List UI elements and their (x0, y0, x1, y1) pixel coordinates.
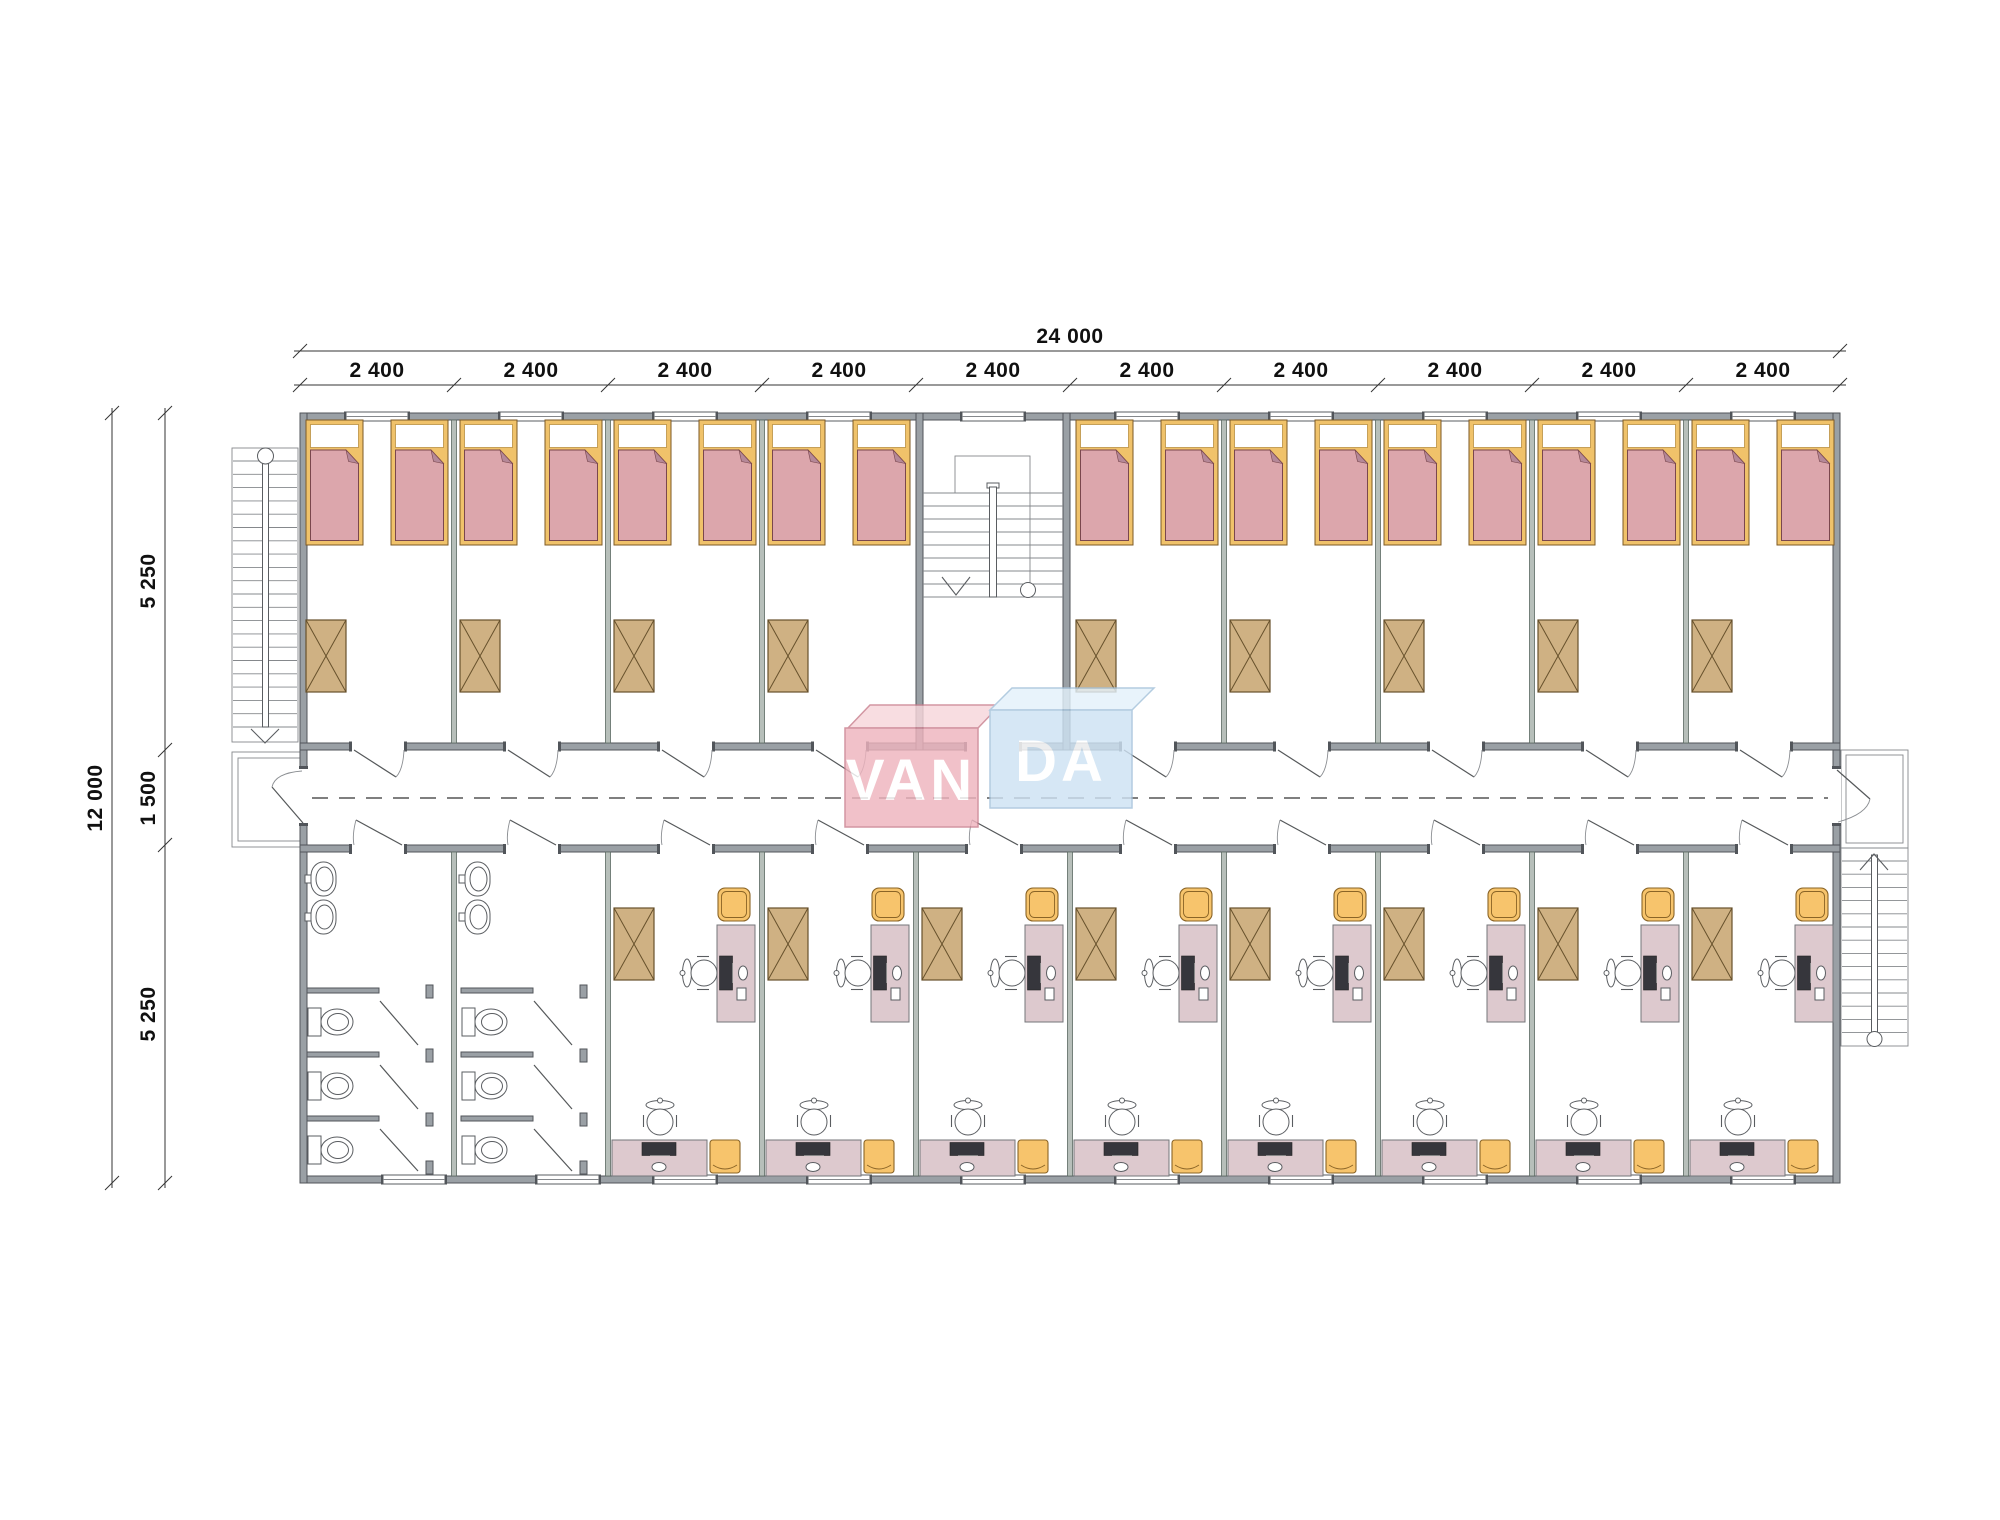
wardrobe (614, 620, 654, 692)
room-door (657, 742, 715, 778)
stall-partition (461, 1052, 533, 1057)
wardrobe (1076, 620, 1116, 692)
room-door (1273, 820, 1331, 854)
partition-wall (1068, 852, 1073, 1176)
office-chair (988, 957, 1025, 990)
window (960, 412, 1026, 422)
desk-with-computer (1690, 1140, 1785, 1176)
exterior-stair-left (232, 448, 298, 743)
stall-door (534, 1065, 572, 1109)
wardrobe (1230, 908, 1270, 980)
logo-text-left: VAN (846, 748, 976, 813)
sink (459, 862, 490, 896)
bed (1777, 420, 1834, 545)
office-chair (834, 957, 871, 990)
stair-start-marker (1867, 1032, 1882, 1047)
chair (1642, 888, 1674, 921)
room-door (503, 820, 561, 854)
dimension-label-corridor: 1 500 (137, 770, 160, 825)
office-chair (1106, 1098, 1139, 1135)
chair (1488, 888, 1520, 921)
chair (872, 888, 904, 921)
bed (545, 420, 602, 545)
desk-with-computer (612, 1140, 707, 1176)
partition-wall (1222, 420, 1227, 743)
office-chair (1722, 1098, 1755, 1135)
logo-cube-blue-top (990, 688, 1154, 710)
room-door (1735, 742, 1793, 778)
room-door (1735, 820, 1793, 854)
room-door (349, 742, 407, 778)
entrance-door-left (272, 766, 308, 826)
stair-start-marker (258, 448, 274, 464)
desk-with-computer (1025, 925, 1063, 1022)
desk-with-computer (1641, 925, 1679, 1022)
wardrobe (1230, 620, 1270, 692)
office-chair (1450, 957, 1487, 990)
bed (853, 420, 910, 545)
room-door (1119, 820, 1177, 854)
stall-door (380, 1065, 418, 1109)
stall-door (534, 1129, 572, 1171)
chair (1796, 888, 1828, 921)
toilet (462, 1136, 507, 1164)
exterior-stair-right (1841, 848, 1908, 1047)
cabinet (1018, 1140, 1048, 1173)
office-chair (798, 1098, 831, 1135)
office-chair (1604, 957, 1641, 990)
room-door (1581, 820, 1639, 854)
wardrobe (306, 620, 346, 692)
entrance-landing-right (1841, 750, 1908, 848)
office-chair (1758, 957, 1795, 990)
bed (391, 420, 448, 545)
partition-wall (606, 852, 611, 1176)
stall-partition (461, 988, 533, 993)
entrance-door-right (1832, 766, 1870, 826)
stall-partition (461, 1116, 533, 1121)
partition-wall (1222, 852, 1227, 1176)
partition-wall (914, 852, 919, 1176)
sink (305, 900, 336, 934)
dimension-label-total-width: 24 000 (1036, 325, 1103, 348)
dimension-label-top-depth: 5 250 (137, 553, 160, 608)
entrance-landing-left (232, 752, 307, 847)
desk-with-computer (717, 925, 755, 1022)
floor-plan-drawing: 24 000 2 400 2 400 2 400 2 400 2 400 2 4… (0, 0, 2000, 1520)
office-chair (1142, 957, 1179, 990)
office-chair (1568, 1098, 1601, 1135)
partition-wall (452, 852, 457, 1176)
wardrobe (1076, 908, 1116, 980)
desk-with-computer (1536, 1140, 1631, 1176)
central-staircase (923, 456, 1063, 598)
bed (1469, 420, 1526, 545)
office-chair (1296, 957, 1333, 990)
vanda-logo: VAN DA (845, 688, 1154, 827)
dimension-label-module: 2 400 (1581, 359, 1636, 382)
room-door (657, 820, 715, 854)
partition-wall (1376, 852, 1381, 1176)
toilet (308, 1136, 353, 1164)
desk-with-computer (1179, 925, 1217, 1022)
logo-text-right: DA (1015, 729, 1107, 794)
bed (1538, 420, 1595, 545)
toilet (308, 1072, 353, 1100)
stair-start-marker (1021, 583, 1036, 598)
wardrobe (460, 620, 500, 692)
desk-with-computer (1795, 925, 1833, 1022)
desk-with-computer (1228, 1140, 1323, 1176)
stall-door (380, 1129, 418, 1171)
bed (1384, 420, 1441, 545)
dimension-label-module: 2 400 (1427, 359, 1482, 382)
room-door (349, 820, 407, 854)
office-chair (952, 1098, 985, 1135)
office-chair (644, 1098, 677, 1135)
desk-with-computer (1333, 925, 1371, 1022)
wardrobe (1692, 908, 1732, 980)
stair-direction-arrow (942, 577, 970, 595)
bed (1315, 420, 1372, 545)
window (535, 1175, 601, 1185)
partition-wall (760, 420, 765, 743)
desk-with-computer (766, 1140, 861, 1176)
partition-wall (1530, 852, 1535, 1176)
cabinet (1172, 1140, 1202, 1173)
dimension-label-module: 2 400 (349, 359, 404, 382)
wardrobe (1384, 908, 1424, 980)
cabinet (864, 1140, 894, 1173)
cabinet (1480, 1140, 1510, 1173)
wardrobe (768, 908, 808, 980)
dimension-label-bottom-depth: 5 250 (137, 986, 160, 1041)
dimension-label-module: 2 400 (1273, 359, 1328, 382)
desk-with-computer (920, 1140, 1015, 1176)
office-chair (680, 957, 717, 990)
partition-wall (606, 420, 611, 743)
partition-wall (760, 852, 765, 1176)
cabinet (710, 1140, 740, 1173)
room-door (1427, 820, 1485, 854)
stall-partition (307, 1052, 379, 1057)
room-door (503, 742, 561, 778)
room-door (1273, 742, 1331, 778)
office-chair (1260, 1098, 1293, 1135)
bed (699, 420, 756, 545)
cabinet (1326, 1140, 1356, 1173)
sink (305, 862, 336, 896)
bathrooms (305, 862, 587, 1174)
stall-door (534, 1001, 572, 1045)
dimension-label-module: 2 400 (811, 359, 866, 382)
dimension-label-total-depth: 12 000 (84, 764, 107, 831)
desk-with-computer (1074, 1140, 1169, 1176)
partition-wall (1684, 852, 1689, 1176)
partition-wall (1376, 420, 1381, 743)
chair (1026, 888, 1058, 921)
room-door (1427, 742, 1485, 778)
wardrobe (1538, 620, 1578, 692)
dimension-label-module: 2 400 (1119, 359, 1174, 382)
cabinet (1788, 1140, 1818, 1173)
toilet (462, 1072, 507, 1100)
chair (1334, 888, 1366, 921)
bed (768, 420, 825, 545)
desk-with-computer (1382, 1140, 1477, 1176)
dimension-label-module: 2 400 (657, 359, 712, 382)
toilet (308, 1008, 353, 1036)
stairwell-wall-left (916, 413, 923, 750)
bed (1230, 420, 1287, 545)
stall-partition (307, 1116, 379, 1121)
stair-direction-arrow (251, 729, 279, 743)
partition-wall (452, 420, 457, 743)
dimension-label-module: 2 400 (965, 359, 1020, 382)
wardrobe (1384, 620, 1424, 692)
bed (614, 420, 671, 545)
stall-door (380, 1001, 418, 1045)
chair (1180, 888, 1212, 921)
bed (1161, 420, 1218, 545)
floor-plan-sheet: 24 000 2 400 2 400 2 400 2 400 2 400 2 4… (0, 0, 2000, 1520)
sink (459, 900, 490, 934)
toilet (462, 1008, 507, 1036)
desk-with-computer (871, 925, 909, 1022)
bed (306, 420, 363, 545)
wardrobe (1538, 908, 1578, 980)
bed (1692, 420, 1749, 545)
stall-partition (307, 988, 379, 993)
office-chair (1414, 1098, 1447, 1135)
wardrobe (768, 620, 808, 692)
logo-cube-pink-top (848, 705, 1000, 728)
room-door (1581, 742, 1639, 778)
bed (460, 420, 517, 545)
desk-with-computer (1487, 925, 1525, 1022)
bed (1076, 420, 1133, 545)
wardrobe (614, 908, 654, 980)
dimension-label-module: 2 400 (503, 359, 558, 382)
wardrobe (922, 908, 962, 980)
partition-wall (1684, 420, 1689, 743)
window (381, 1175, 447, 1185)
wardrobe (1692, 620, 1732, 692)
chair (718, 888, 750, 921)
cabinet (1634, 1140, 1664, 1173)
dimension-label-module: 2 400 (1735, 359, 1790, 382)
partition-wall (1530, 420, 1535, 743)
bed (1623, 420, 1680, 545)
